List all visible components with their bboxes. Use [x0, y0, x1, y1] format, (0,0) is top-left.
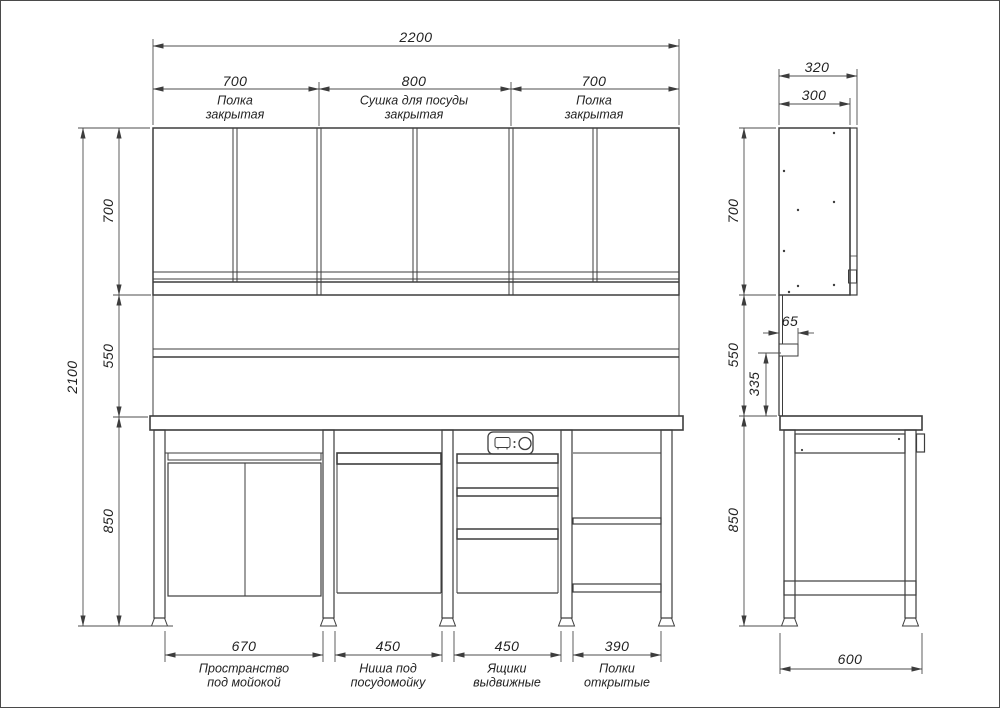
dim-section-3: 700	[582, 73, 607, 89]
dim-side-lower-height: 850	[725, 508, 741, 533]
drawing-line-art	[1, 1, 1000, 708]
worktop-side	[780, 416, 922, 430]
dim-section-2: 800	[402, 73, 427, 89]
backsplash-panel	[153, 295, 679, 416]
drawer-unit	[457, 432, 558, 593]
sink-cupboard	[165, 453, 323, 596]
shelf-bracket	[779, 344, 798, 356]
adjustable-feet-front	[152, 618, 675, 626]
dim-bay-1: 670	[232, 638, 257, 654]
side-view	[779, 128, 925, 626]
dim-lower-height: 850	[100, 509, 116, 534]
dim-side-upper-height: 700	[725, 199, 741, 224]
label-section-3: Полка закрытая	[565, 95, 624, 122]
control-panel-icon	[488, 432, 533, 454]
label-bay-2: Ниша под посудомойку	[351, 663, 426, 690]
dim-bay-3: 450	[495, 638, 520, 654]
dim-overall-width: 2200	[399, 29, 432, 45]
dim-bay-4: 390	[605, 638, 630, 654]
adjustable-feet-side	[782, 618, 919, 626]
dishwasher-niche	[337, 453, 441, 593]
dim-shelf-depth: 65	[782, 313, 799, 329]
worktop-front	[150, 416, 683, 430]
label-bay-3: Ящики выдвижные	[473, 663, 541, 690]
dim-shelf-to-worktop: 335	[746, 372, 762, 397]
dim-overall-height: 2100	[64, 360, 80, 393]
dim-side-middle-height: 550	[725, 343, 741, 368]
fastener-dots	[783, 132, 835, 293]
label-bay-4: Полки открытые	[584, 663, 650, 690]
dim-middle-height: 550	[100, 344, 116, 369]
label-bay-1: Пространство под мойокой	[199, 663, 289, 690]
dim-depth-body: 300	[802, 87, 827, 103]
wall-cabinet-front	[153, 128, 679, 295]
open-shelves	[573, 453, 661, 592]
dim-section-1: 700	[223, 73, 248, 89]
front-view	[150, 128, 683, 626]
label-section-1: Полка закрытая	[206, 95, 265, 122]
table-side	[784, 430, 925, 618]
dim-depth-base: 600	[838, 651, 863, 667]
label-section-2: Сушка для посуды закрытая	[360, 95, 468, 122]
wall-cabinet-side	[779, 128, 857, 295]
dim-bay-2: 450	[376, 638, 401, 654]
side-view-dimensions	[739, 69, 922, 674]
outlet-box	[917, 434, 925, 452]
dim-upper-height: 700	[100, 199, 116, 224]
technical-drawing-canvas: 2200 700 800 700 Полка закрытая Сушка дл…	[0, 0, 1000, 708]
dim-depth-overall: 320	[805, 59, 830, 75]
